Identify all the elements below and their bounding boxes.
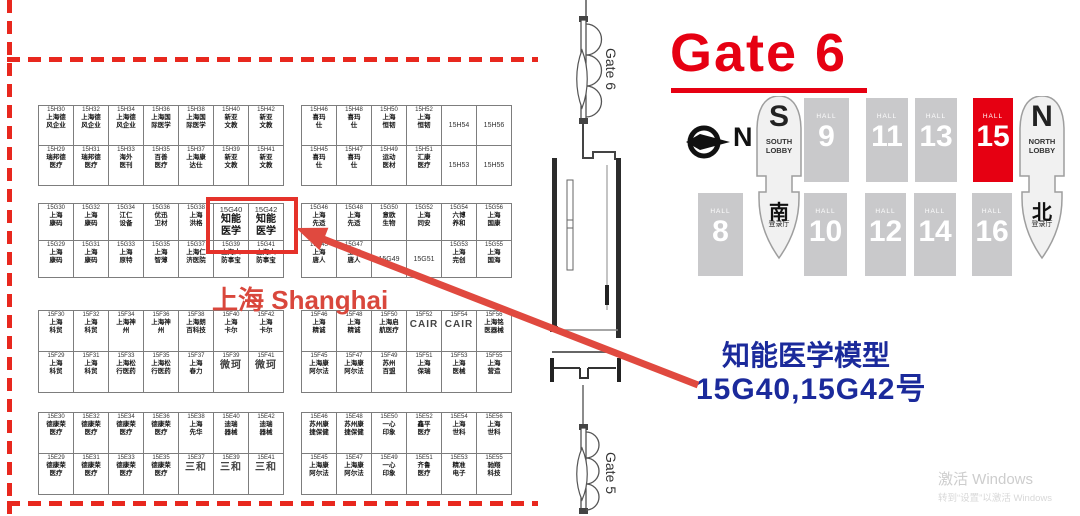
- wall-segment: [605, 285, 609, 305]
- booth-name: 上海 精诚: [302, 319, 336, 334]
- booth-id: 15G56: [477, 204, 511, 212]
- threshold-notch: [580, 368, 588, 378]
- booth-id: 15G54: [442, 204, 476, 212]
- booth-name: 上海 科贸: [74, 360, 108, 375]
- booth-name: 百善 医疗: [144, 154, 178, 169]
- booth-cell-15E41: 15E41三和: [248, 453, 284, 495]
- booth-id: 15G52: [407, 204, 441, 212]
- wall-bracket: [550, 358, 554, 382]
- booth-id: 15E53: [442, 454, 476, 462]
- booth-cell-15E39: 15E39三和: [213, 453, 249, 495]
- booth-name: 海外 医刊: [109, 154, 143, 169]
- booth-id: 15F47: [337, 352, 371, 360]
- south-registration-sub: 登录厅: [754, 219, 804, 229]
- booth-name: 意欧 生物: [372, 212, 406, 227]
- booth-cell-15G49: 15G49: [371, 240, 407, 278]
- booth-name: 上海 春力: [179, 360, 213, 375]
- booth-name: 三和: [249, 462, 283, 474]
- booth-id: 15F53: [442, 352, 476, 360]
- hall-label: HALL: [804, 193, 847, 216]
- booth-name: 三和: [214, 462, 248, 474]
- booth-cell-15F47: 15F47上海康 阿尔法: [336, 351, 372, 393]
- booth-name: 上海松 行医药: [144, 360, 178, 375]
- booth-cell-15G33: 15G33上海 原特: [108, 240, 144, 278]
- booth-name: 上海康 阿尔法: [302, 462, 336, 477]
- booth-cell-15E42: 15E42迪瑞 器械: [248, 412, 284, 454]
- booth-name: 微珂: [214, 360, 248, 372]
- booth-id: 15F38: [179, 311, 213, 319]
- booth-cell-15G48: 15G48上海 先适: [336, 203, 372, 241]
- escalator-tick: [567, 220, 573, 228]
- hall-label: HALL: [804, 98, 849, 121]
- booth-name: 德康荣 医疗: [74, 421, 108, 436]
- north-lobby-label: NORTH LOBBY: [1017, 138, 1067, 155]
- booth-cell-15F30: 15F30上海 科贸: [38, 310, 74, 352]
- booth-name: 德康荣 医疗: [144, 462, 178, 477]
- booth-name: 苏州 百盟: [372, 360, 406, 375]
- booth-id: 15H37: [179, 146, 213, 154]
- target-annotation-line2: 15G40,15G42号: [696, 364, 926, 408]
- booth-cell-15H36: 15H36上海国 际医学: [143, 105, 179, 146]
- booth-name: 三和: [179, 462, 213, 474]
- booth-name: 上海铭 医器械: [477, 319, 511, 334]
- south-lobby-line2: LOBBY: [754, 147, 804, 156]
- gate6-heading: Gate 6: [670, 22, 847, 84]
- booth-id: 15E38: [179, 413, 213, 421]
- south-lobby-letter: S: [754, 100, 804, 134]
- booth-cell-15F51: 15F51上海 保瑞: [406, 351, 442, 393]
- booth-id: 15E29: [39, 454, 73, 462]
- booth-cell-15F38: 15F38上海朗 百科技: [178, 310, 214, 352]
- booth-cell-15G45: 15G45上海 唐人: [301, 240, 337, 278]
- booth-name: 微珂: [249, 360, 283, 372]
- booth-name: 上海康 阿尔法: [337, 462, 371, 477]
- booth-name: 德康荣 医疗: [39, 421, 73, 436]
- booth-cell-15F56: 15F56上海铭 医器械: [476, 310, 512, 352]
- booth-id: 15H30: [39, 106, 73, 114]
- booth-name: CAIR: [442, 319, 476, 331]
- hall-number: 10: [804, 216, 847, 248]
- booth-cell-15F33: 15F33上海松 行医药: [108, 351, 144, 393]
- hall-label: HALL: [698, 193, 743, 216]
- hall-block-14: HALL14: [914, 193, 956, 276]
- gate6-rotated-label: Gate 6: [603, 48, 619, 90]
- booth-name: 上海 先华: [179, 421, 213, 436]
- booth-cell-15E50: 15E50一心 印象: [371, 412, 407, 454]
- booth-name: 精准 电子: [442, 462, 476, 477]
- booth-id: 15F49: [372, 352, 406, 360]
- shanghai-label: 上海 Shanghai: [212, 280, 388, 317]
- booth-name: 上海国 际医学: [179, 114, 213, 129]
- door-arc: [586, 86, 602, 117]
- booth-name: 上海 保瑞: [407, 360, 441, 375]
- booth-id: 15E32: [74, 413, 108, 421]
- hall-number: 8: [698, 216, 743, 248]
- booth-id: 15G50: [372, 204, 406, 212]
- booth-id: 15E47: [337, 454, 371, 462]
- booth-id: 15H50: [372, 106, 406, 114]
- booth-id: 15E55: [477, 454, 511, 462]
- booth-cell-15E29: 15E29德康荣 医疗: [38, 453, 74, 495]
- booth-id: 15F45: [302, 352, 336, 360]
- booth-cell-15E49: 15E49一心 印象: [371, 453, 407, 495]
- booth-cell-15G52: 15G52上海 同安: [406, 203, 442, 241]
- booth-name: 迪瑞 器械: [249, 421, 283, 436]
- booth-cell-15H47: 15H47喜玛 仕: [336, 145, 372, 186]
- booth-cell-15E34: 15E34德康荣 医疗: [108, 412, 144, 454]
- booth-id: 15E41: [249, 454, 283, 462]
- booth-name: 六博 养和: [442, 212, 476, 227]
- booth-id: 15F54: [442, 311, 476, 319]
- booth-name: 驰翔 科技: [477, 462, 511, 477]
- booth-id: 15E37: [179, 454, 213, 462]
- booth-name: 上海 恒韧: [372, 114, 406, 129]
- booth-cell-15E54: 15E54上海 世科: [441, 412, 477, 454]
- north-registration-sub: 登录厅: [1017, 219, 1067, 229]
- booth-name: 德康荣 医疗: [109, 462, 143, 477]
- booth-id: 15E40: [214, 413, 248, 421]
- windows-activation-hint: 转到“设置”以激活 Windows: [938, 490, 1052, 504]
- booth-id: 15F41: [249, 352, 283, 360]
- booth-id: 15H45: [302, 146, 336, 154]
- booth-id: 15E51: [407, 454, 441, 462]
- booth-id: 15H52: [407, 106, 441, 114]
- booth-id: 15F56: [477, 311, 511, 319]
- booth-name: 新亚 文教: [214, 114, 248, 129]
- booth-name: 迪瑞 器械: [214, 421, 248, 436]
- booth-id: 15E48: [337, 413, 371, 421]
- booth-name: 上海康 阿尔法: [302, 360, 336, 375]
- booth-name: 上海神 州: [144, 319, 178, 334]
- booth-name: 上海 世科: [477, 421, 511, 436]
- booth-cell-15F31: 15F31上海 科贸: [73, 351, 109, 393]
- booth-cell-15F32: 15F32上海 科贸: [73, 310, 109, 352]
- hall-label: HALL: [973, 98, 1013, 121]
- booth-name: 上海朗 百科技: [179, 319, 213, 334]
- hall-block-15: HALL15: [973, 98, 1013, 182]
- booth-id: 15F34: [109, 311, 143, 319]
- booth-cell-15G50: 15G50意欧 生物: [371, 203, 407, 241]
- hall-number: 15: [973, 121, 1013, 153]
- hall-number: 12: [865, 216, 906, 248]
- booth-cell-15E56: 15E56上海 世科: [476, 412, 512, 454]
- booth-id: 15G45: [302, 241, 336, 249]
- booth-cell-15E38: 15E38上海 先华: [178, 412, 214, 454]
- booth-name: 上海 卡尔: [214, 319, 248, 334]
- booth-id: 15E45: [302, 454, 336, 462]
- booth-id: 15H32: [74, 106, 108, 114]
- booth-name: 上海 唐人: [337, 249, 371, 264]
- booth-cell-15H35: 15H35百善 医疗: [143, 145, 179, 186]
- booth-id: 15E49: [372, 454, 406, 462]
- booth-id: 15G30: [39, 204, 73, 212]
- booth-name: 上海康 达仕: [179, 154, 213, 169]
- compass-n-label: N: [733, 122, 753, 153]
- booth-cell-15E31: 15E31德康荣 医疗: [73, 453, 109, 495]
- booth-cell-15G30: 15G30上海 康码: [38, 203, 74, 241]
- booth-id: 15G31: [74, 241, 108, 249]
- hall-block-10: HALL10: [804, 193, 847, 276]
- booth-id: 15G32: [74, 204, 108, 212]
- booth-cell-15E52: 15E52鑫平 医疗: [406, 412, 442, 454]
- booth-name: 喜玛 仕: [337, 154, 371, 169]
- wall-bracket: [617, 358, 621, 382]
- booth-id: 15H49: [372, 146, 406, 154]
- booth-cell-15F54: 15F54CAIR: [441, 310, 477, 352]
- booth-cell-15F29: 15F29上海 科贸: [38, 351, 74, 393]
- booth-id: 15G35: [144, 241, 178, 249]
- booth-name: 苏州康 捷保健: [337, 421, 371, 436]
- hall-label: HALL: [865, 193, 906, 216]
- hall-block-16: HALL16: [972, 193, 1012, 276]
- booth-name: 德康荣 医疗: [144, 421, 178, 436]
- booth-id: 15H41: [249, 146, 283, 154]
- booth-cell-15H48: 15H48喜玛 仕: [336, 105, 372, 146]
- booth-name: 上海 唐人: [302, 249, 336, 264]
- booth-name: 瑞邦德 医疗: [74, 154, 108, 169]
- booth-id: 15E46: [302, 413, 336, 421]
- booth-id: 15H35: [144, 146, 178, 154]
- booth-id: 15E36: [144, 413, 178, 421]
- booth-id: 15E34: [109, 413, 143, 421]
- booth-cell-15F37: 15F37上海 春力: [178, 351, 214, 393]
- booth-id: 15G36: [144, 204, 178, 212]
- booth-cell-15H49: 15H49运动 医材: [371, 145, 407, 186]
- booth-cell-15H45: 15H45喜玛 仕: [301, 145, 337, 186]
- booth-name: 德康荣 医疗: [74, 462, 108, 477]
- booth-id: 15H42: [249, 106, 283, 114]
- booth-name: 运动 医材: [372, 154, 406, 169]
- door-arc: [586, 55, 602, 86]
- booth-cell-15H30: 15H30上海德 风企业: [38, 105, 74, 146]
- booth-id: 15G55: [477, 241, 511, 249]
- door-arc: [586, 458, 599, 484]
- booth-name: 上海 先适: [302, 212, 336, 227]
- booth-name: 上海德 风企业: [109, 114, 143, 129]
- hall-block-9: HALL9: [804, 98, 849, 182]
- booth-cell-15F45: 15F45上海康 阿尔法: [301, 351, 337, 393]
- booth-id: 15G47: [337, 241, 371, 249]
- booth-cell-15F49: 15F49苏州 百盟: [371, 351, 407, 393]
- booth-name: 上海松 行医药: [109, 360, 143, 375]
- booth-cell-15E36: 15E36德康荣 医疗: [143, 412, 179, 454]
- booth-id: 15H54: [449, 122, 470, 129]
- booth-cell-15H34: 15H34上海德 风企业: [108, 105, 144, 146]
- booth-id: 15F30: [39, 311, 73, 319]
- booth-name: 一心 印象: [372, 421, 406, 436]
- booth-name: 上海 智薄: [144, 249, 178, 264]
- booth-id: 15G33: [109, 241, 143, 249]
- hall-block-8: HALL8: [698, 193, 743, 276]
- booth-cell-15E46: 15E46苏州康 捷保健: [301, 412, 337, 454]
- hall-block-12: HALL12: [865, 193, 906, 276]
- door-arc: [586, 432, 599, 458]
- booth-cell-15G29: 15G29上海 康码: [38, 240, 74, 278]
- north-lobby-line2: LOBBY: [1017, 147, 1067, 156]
- booth-id: 15F55: [477, 352, 511, 360]
- booth-cell-15H54: 15H54: [441, 105, 477, 146]
- booth-name: 新亚 文教: [249, 114, 283, 129]
- hall-number: 16: [972, 216, 1012, 248]
- booth-id: 15H36: [144, 106, 178, 114]
- booth-name: 上海 世科: [442, 421, 476, 436]
- booth-id: 15F33: [109, 352, 143, 360]
- wall-step: [583, 122, 615, 160]
- booth-id: 15H48: [337, 106, 371, 114]
- booth-id: 15H34: [109, 106, 143, 114]
- gate5-rotated-label: Gate 5: [603, 452, 619, 494]
- booth-id: 15F35: [144, 352, 178, 360]
- booth-id: 15F29: [39, 352, 73, 360]
- hall-label: HALL: [866, 98, 908, 121]
- booth-cell-15F55: 15F55上海 营造: [476, 351, 512, 393]
- north-lobby-letter: N: [1017, 100, 1067, 134]
- gate6-heading-underline: [671, 88, 867, 93]
- hall-block-11: HALL11: [866, 98, 908, 182]
- booth-cell-15G55: 15G55上海 国海: [476, 240, 512, 278]
- booth-name: 上海启 航医疗: [372, 319, 406, 334]
- booth-cell-15H32: 15H32上海德 风企业: [73, 105, 109, 146]
- booth-id: 15E56: [477, 413, 511, 421]
- booth-cell-15E30: 15E30德康荣 医疗: [38, 412, 74, 454]
- booth-name: 上海德 风企业: [39, 114, 73, 129]
- booth-name: 上海 医械: [442, 360, 476, 375]
- booth-id: 15H55: [484, 162, 505, 169]
- booth-cell-15G54: 15G54六博 养和: [441, 203, 477, 241]
- booth-id: 15G34: [109, 204, 143, 212]
- corridor-drawing: Gate 6 Gate 5: [530, 0, 675, 516]
- booth-id: 15E54: [442, 413, 476, 421]
- booth-cell-15G31: 15G31上海 康码: [73, 240, 109, 278]
- south-lobby-label: SOUTH LOBBY: [754, 138, 804, 155]
- hall-number: 9: [804, 121, 849, 153]
- booth-id: 15G29: [39, 241, 73, 249]
- booth-cell-15F36: 15F36上海神 州: [143, 310, 179, 352]
- booth-cell-15E47: 15E47上海康 阿尔法: [336, 453, 372, 495]
- booth-name: 上海神 州: [109, 319, 143, 334]
- corridor-wall-left: [552, 158, 557, 330]
- booth-name: 上海 国海: [477, 249, 511, 264]
- highlight-box: [206, 197, 298, 254]
- booth-cell-15G32: 15G32上海 康码: [73, 203, 109, 241]
- booth-cell-15G36: 15G36优迅 卫材: [143, 203, 179, 241]
- booth-cell-15E55: 15E55驰翔 科技: [476, 453, 512, 495]
- booth-cell-15E45: 15E45上海康 阿尔法: [301, 453, 337, 495]
- booth-cell-15E32: 15E32德康荣 医疗: [73, 412, 109, 454]
- booth-id: 15F31: [74, 352, 108, 360]
- booth-id: 15H38: [179, 106, 213, 114]
- booth-cell-15H52: 15H52上海 恒韧: [406, 105, 442, 146]
- gate5-wall-cap-bottom: [579, 508, 588, 514]
- booth-cell-15G51: 15G51: [406, 240, 442, 278]
- compass-icon: [684, 122, 736, 162]
- hall-number: 13: [915, 121, 957, 153]
- booth-id: 15H51: [407, 146, 441, 154]
- booth-name: 苏州康 捷保健: [302, 421, 336, 436]
- booth-id: 15H29: [39, 146, 73, 154]
- booth-cell-15H29: 15H29瑞邦德 医疗: [38, 145, 74, 186]
- booth-name: 上海 原特: [109, 249, 143, 264]
- booth-name: 上海国 际医学: [144, 114, 178, 129]
- booth-id: 15G49: [378, 256, 399, 263]
- booth-cell-15E35: 15E35德康荣 医疗: [143, 453, 179, 495]
- booth-name: 上海 国康: [477, 212, 511, 227]
- booth-cell-15E37: 15E37三和: [178, 453, 214, 495]
- booth-name: 上海 科贸: [74, 319, 108, 334]
- booth-id: 15H56: [484, 122, 505, 129]
- booth-name: CAIR: [407, 319, 441, 331]
- dashed-border-top: [7, 57, 538, 62]
- booth-cell-15F34: 15F34上海神 州: [108, 310, 144, 352]
- booth-name: 汇康 医疗: [407, 154, 441, 169]
- booth-name: 上海 康码: [74, 212, 108, 227]
- booth-cell-15G34: 15G34江仁 设备: [108, 203, 144, 241]
- booth-name: 上海 完创: [442, 249, 476, 264]
- hall-label: HALL: [914, 193, 956, 216]
- booth-id: 15H39: [214, 146, 248, 154]
- booth-name: 鑫平 医疗: [407, 421, 441, 436]
- booth-cell-15E51: 15E51齐鲁 医疗: [406, 453, 442, 495]
- hall-label: HALL: [915, 98, 957, 121]
- booth-cell-15F39: 15F39微珂: [213, 351, 249, 393]
- booth-cell-15H33: 15H33海外 医刊: [108, 145, 144, 186]
- booth-name: 上海 恒韧: [407, 114, 441, 129]
- booth-cell-15H42: 15H42新亚 文教: [248, 105, 284, 146]
- booth-id: 15E39: [214, 454, 248, 462]
- booth-id: 15E30: [39, 413, 73, 421]
- booth-id: 15E35: [144, 454, 178, 462]
- booth-cell-15G46: 15G46上海 先适: [301, 203, 337, 241]
- booth-name: 瑞邦德 医疗: [39, 154, 73, 169]
- booth-id: 15H47: [337, 146, 371, 154]
- dashed-border-left: [7, 0, 12, 514]
- door-arc: [586, 484, 599, 510]
- booth-id: 15F36: [144, 311, 178, 319]
- booth-id: 15E33: [109, 454, 143, 462]
- booth-name: 一心 印象: [372, 462, 406, 477]
- booth-cell-15F41: 15F41微珂: [248, 351, 284, 393]
- booth-id: 15E50: [372, 413, 406, 421]
- door-arc: [586, 24, 602, 55]
- booth-name: 江仁 设备: [109, 212, 143, 227]
- booth-name: 新亚 文教: [249, 154, 283, 169]
- booth-cell-15G56: 15G56上海 国康: [476, 203, 512, 241]
- booth-name: 上海 同安: [407, 212, 441, 227]
- booth-name: 喜玛 仕: [302, 154, 336, 169]
- booth-cell-15E33: 15E33德康荣 医疗: [108, 453, 144, 495]
- booth-cell-15H51: 15H51汇康 医疗: [406, 145, 442, 186]
- booth-cell-15H46: 15H46喜玛 仕: [301, 105, 337, 146]
- booth-cell-15H41: 15H41新亚 文教: [248, 145, 284, 186]
- dashed-border-bottom: [7, 501, 538, 506]
- booth-cell-15H31: 15H31瑞邦德 医疗: [73, 145, 109, 186]
- booth-id: 15E52: [407, 413, 441, 421]
- booth-name: 优迅 卫材: [144, 212, 178, 227]
- booth-cell-15F53: 15F53上海 医械: [441, 351, 477, 393]
- booth-cell-15H56: 15H56: [476, 105, 512, 146]
- booth-cell-15H39: 15H39新亚 文教: [213, 145, 249, 186]
- booth-id: 15E31: [74, 454, 108, 462]
- booth-id: 15F37: [179, 352, 213, 360]
- booth-name: 上海 科贸: [39, 319, 73, 334]
- booth-id: 15H33: [109, 146, 143, 154]
- booth-name: 上海德 风企业: [74, 114, 108, 129]
- booth-cell-15E48: 15E48苏州康 捷保健: [336, 412, 372, 454]
- booth-cell-15H55: 15H55: [476, 145, 512, 186]
- booth-id: 15F51: [407, 352, 441, 360]
- hall-label: HALL: [972, 193, 1012, 216]
- booth-id: 15G53: [442, 241, 476, 249]
